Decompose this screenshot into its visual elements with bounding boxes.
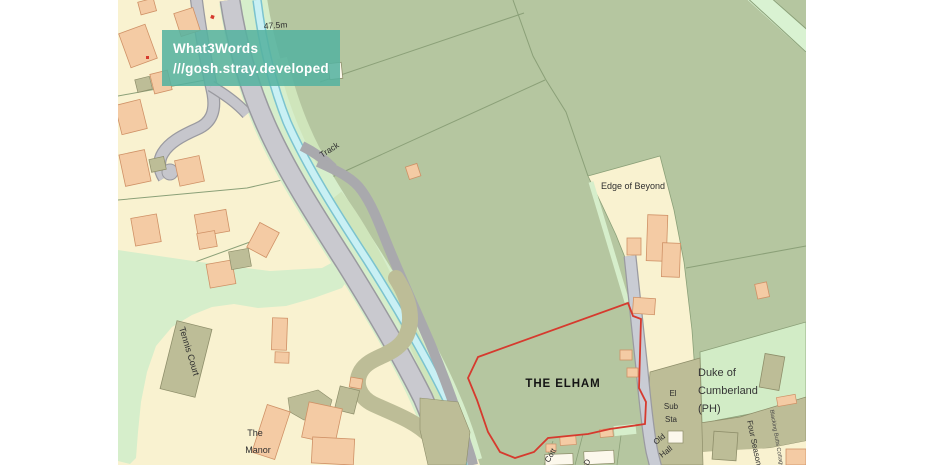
duke-label-2: Cumberland — [698, 385, 758, 397]
village-building — [786, 449, 806, 465]
map-marker-dot — [146, 56, 149, 59]
what3words-badge-bg — [162, 30, 340, 86]
village-building — [712, 431, 738, 461]
el-sub-sta-label-1: El — [669, 389, 676, 398]
edge-of-beyond-label: Edge of Beyond — [601, 181, 665, 191]
what3words-address: ///gosh.stray.developed — [173, 61, 329, 76]
what3words-title: What3Words — [173, 41, 258, 56]
map-screenshot: 47.5m Track Edge of Beyond THE ELHAM El … — [0, 0, 930, 465]
the-manor-label-1: The — [247, 428, 263, 438]
spot-height-label: 47.5m — [263, 19, 287, 31]
subject-property-label: THE ELHAM — [525, 378, 600, 390]
duke-label-1: Duke of — [698, 367, 737, 379]
substation-building — [668, 431, 683, 443]
duke-label-3: (PH) — [698, 403, 721, 415]
the-manor-label-2: Manor — [245, 445, 271, 455]
os-map: 47.5m Track Edge of Beyond THE ELHAM El … — [0, 0, 930, 465]
el-sub-sta-label-2: Sub — [664, 402, 679, 411]
el-sub-sta-label-3: Sta — [665, 415, 678, 424]
what3words-badge: What3Words ///gosh.stray.developed — [162, 30, 340, 86]
